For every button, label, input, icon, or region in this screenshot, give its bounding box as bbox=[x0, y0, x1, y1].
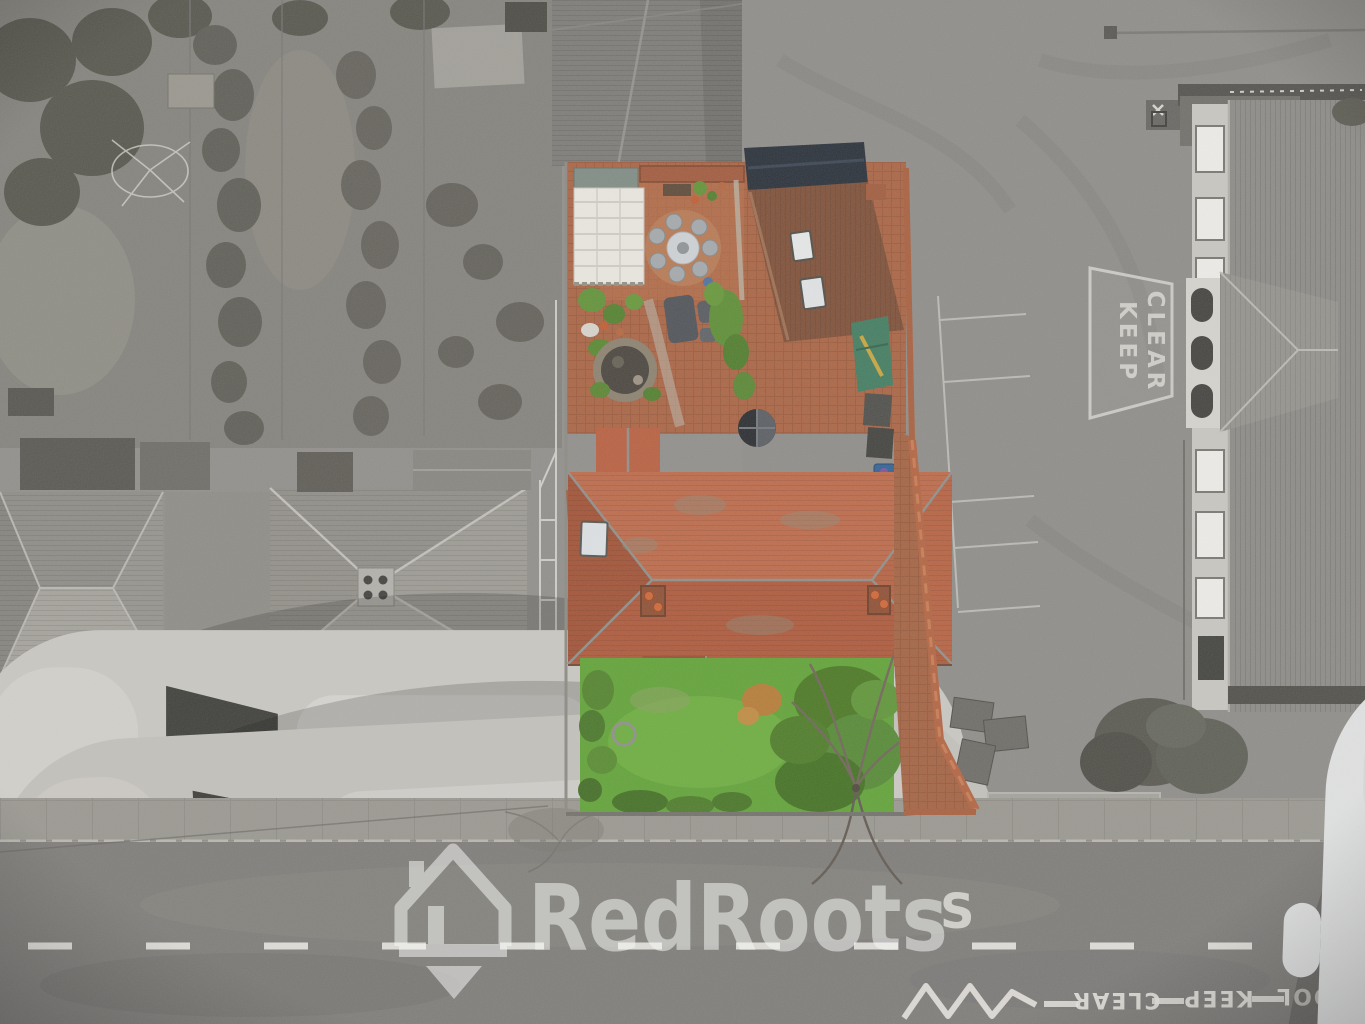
aerial-photo: KEEP CLEAR bbox=[0, 0, 1365, 1024]
vignette-overlay bbox=[0, 0, 1365, 1024]
